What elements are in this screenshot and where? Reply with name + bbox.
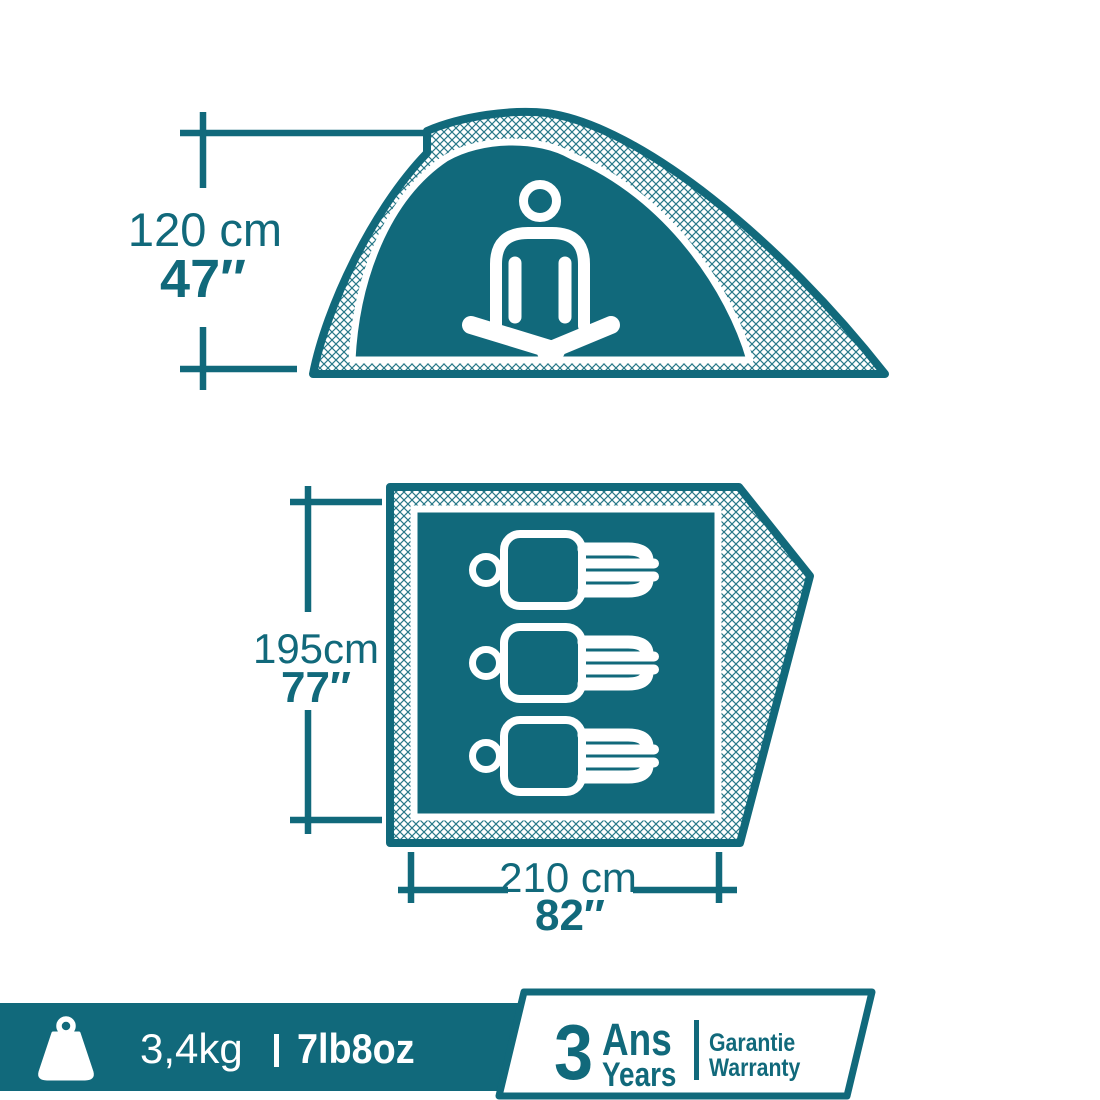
warranty-units: Ans Years [602, 1019, 676, 1090]
floor-inner-room [414, 509, 718, 817]
tent-spec-infographic: 120 cm 47″ 195cm 77″ 210 cm 82″ 3,4kg 7l… [0, 0, 1100, 1100]
warranty-label-fr: Garantie [709, 1031, 800, 1056]
tent-floor-plan [390, 487, 810, 843]
warranty-unit-fr: Ans [602, 1019, 676, 1060]
warranty-separator [694, 1020, 699, 1080]
warranty-unit-en: Years [602, 1060, 676, 1090]
weight-imperial: 7lb8oz [297, 1028, 415, 1070]
tent-height-imperial: 47″ [160, 252, 246, 306]
weight-metric: 3,4kg [140, 1028, 243, 1070]
warranty-duration: 3 [554, 1013, 593, 1091]
weight-separator [274, 1034, 279, 1067]
tent-height-metric: 120 cm [128, 206, 282, 253]
warranty-labels: Garantie Warranty [709, 1031, 800, 1081]
floor-length-imperial: 77″ [281, 666, 351, 710]
warranty-label-en: Warranty [709, 1056, 800, 1081]
floor-width-imperial: 82″ [535, 894, 605, 938]
tent-side-view [313, 112, 885, 374]
